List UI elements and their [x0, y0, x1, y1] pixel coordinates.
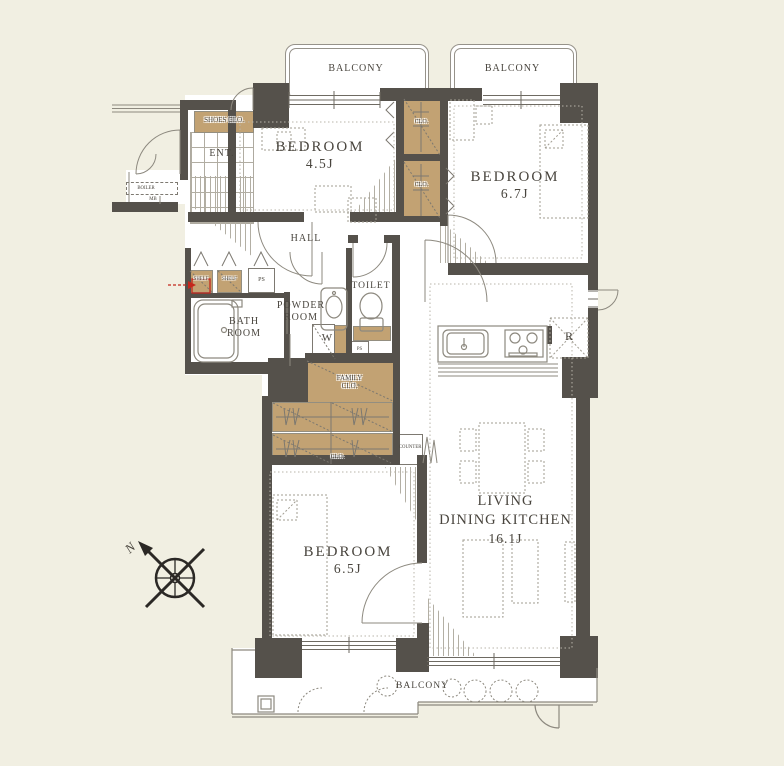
room-name: BEDROOM — [303, 544, 392, 560]
compass-north-label: N — [122, 539, 139, 557]
ps-hall-label: PS — [248, 277, 275, 284]
ldk-label: LIVING DINING KITCHEN 16.1J — [418, 492, 593, 547]
meter-box-label: MB — [145, 197, 161, 203]
shelf-left-label: SHELF — [191, 277, 210, 283]
wall-segment — [305, 353, 397, 363]
room-name: DINING KITCHEN — [418, 511, 593, 530]
wall-segment — [346, 248, 352, 360]
shelf-right-label: SHELF — [220, 277, 240, 283]
shoes-closet-label: SHOES CLO. — [194, 116, 254, 124]
toilet-base — [353, 326, 391, 341]
room-name: BEDROOM — [470, 169, 559, 185]
room-name: BEDROOM — [275, 139, 364, 155]
boiler-label: BOILER — [130, 186, 162, 192]
wall-block — [268, 358, 308, 402]
refrigerator-label: R — [558, 329, 580, 343]
wall-pillar — [253, 83, 289, 128]
north-arrow — [138, 541, 153, 556]
room-name: LIVING — [418, 492, 593, 511]
wall-segment — [228, 108, 236, 222]
floor-plan: BALCONY BALCONY BALCONY BEDROOM 4.5J BED… — [0, 0, 784, 766]
closet-top — [402, 97, 441, 157]
entrance-label: ENT. — [196, 148, 248, 160]
closet-name: CLO. — [305, 382, 394, 390]
powder-room-label: POWDER ROOM — [262, 300, 340, 324]
wall-segment — [448, 263, 598, 275]
wall-segment — [185, 362, 273, 374]
wall-segment — [185, 248, 191, 368]
hall-label: HALL — [280, 233, 332, 245]
wall-segment — [180, 100, 188, 180]
counter-label: COUNTER — [399, 445, 421, 451]
washer-label: W — [316, 332, 338, 345]
closet-middle-label: CLO. — [402, 182, 441, 189]
service-door — [598, 290, 618, 310]
entrance-double-door — [136, 130, 180, 174]
toilet-label: TOILET — [342, 281, 400, 292]
wall-segment — [392, 235, 400, 363]
room-size: 6.5J — [268, 561, 428, 577]
bedroom-a-label: BEDROOM 4.5J — [240, 138, 400, 172]
room-name: POWDER — [262, 300, 340, 312]
balcony-top-right-label: BALCONY — [450, 63, 575, 75]
room-name: ROOM — [212, 328, 276, 340]
room-size: 16.1J — [418, 530, 593, 548]
wall-pillar — [560, 83, 598, 123]
room-name: ROOM — [262, 312, 340, 324]
wall-block — [562, 357, 598, 398]
balcony-bottom-label: BALCONY — [380, 681, 465, 692]
family-closet-label: FAMILY CLO. — [305, 374, 394, 391]
wall-segment — [262, 396, 272, 645]
balcony-partition — [535, 705, 559, 728]
wall-segment — [588, 275, 598, 290]
wall-pillar — [396, 638, 417, 672]
closet-middle — [402, 160, 441, 220]
bedroom-c-label: BEDROOM 6.5J — [268, 543, 428, 577]
room-size: 4.5J — [240, 156, 400, 172]
wall-segment — [348, 235, 358, 243]
balcony-top-left-label: BALCONY — [285, 63, 427, 75]
closet-bottom-label: CLO. — [300, 454, 375, 461]
wall-pillar — [255, 638, 302, 678]
room-size: 6.7J — [440, 186, 590, 202]
wall-segment — [417, 623, 429, 672]
closet-top-label: CLO. — [402, 119, 441, 126]
wall-segment — [112, 202, 178, 212]
wall-segment — [440, 216, 448, 226]
wall-pillar — [560, 636, 598, 678]
ps-toilet-label: PS — [352, 347, 367, 353]
closet-row-upper — [272, 402, 393, 432]
bedroom-b-label: BEDROOM 6.7J — [440, 168, 590, 202]
compass — [138, 541, 204, 607]
wall-segment — [547, 326, 552, 344]
wall-segment — [188, 293, 288, 298]
wall-segment — [588, 308, 598, 357]
wall-segment — [188, 212, 304, 222]
wall-segment — [384, 235, 400, 243]
wall-segment — [398, 154, 442, 161]
